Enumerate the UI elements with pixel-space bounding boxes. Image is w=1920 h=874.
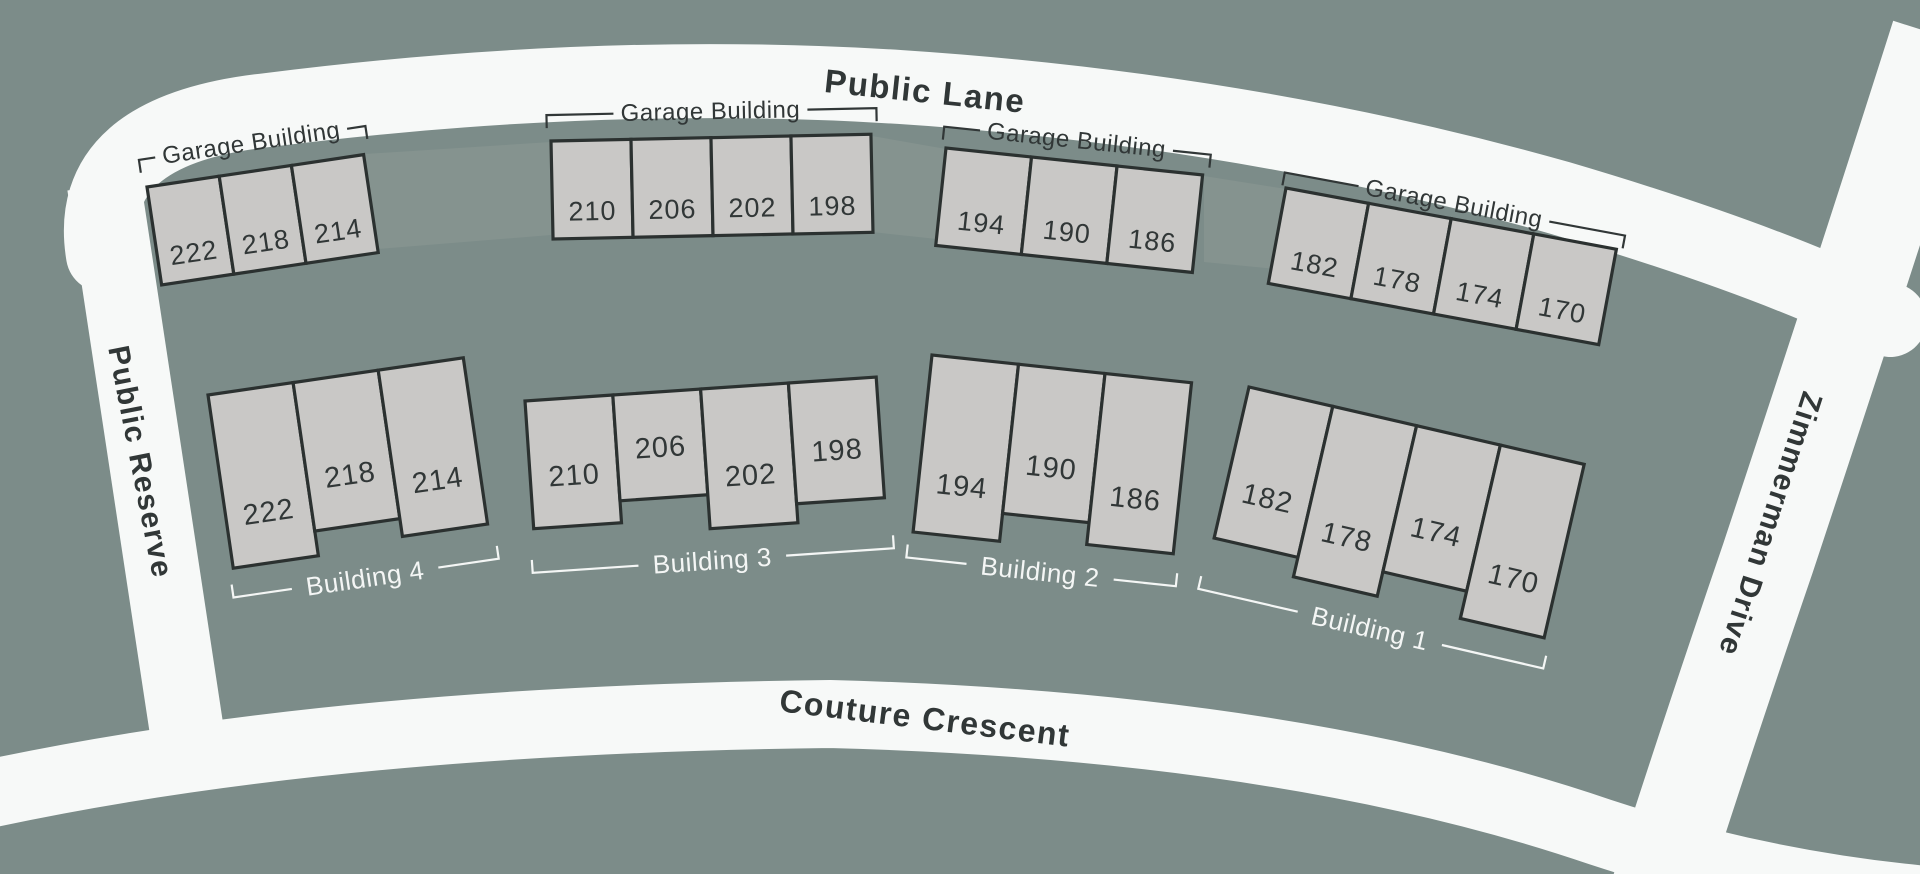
site-plan: Public LanePublic ReserveCouture Crescen…	[0, 0, 1920, 874]
garage-unit-194	[936, 148, 1032, 254]
site-plan-map: Public LanePublic ReserveCouture Crescen…	[0, 0, 1920, 874]
garage-unit-186	[1107, 166, 1203, 272]
garage-unit-170	[1516, 234, 1616, 345]
garage-unit-label-190: 190	[1041, 215, 1092, 250]
unit-label-210: 210	[547, 458, 600, 493]
building-unit-186	[1087, 373, 1192, 553]
garage-unit-label-206: 206	[648, 194, 697, 225]
garage-building-3-label: Garage Building	[620, 96, 800, 127]
unit-label-194: 194	[934, 468, 989, 505]
garage-driveway-gap	[872, 136, 946, 240]
garage-unit-label-198: 198	[808, 191, 857, 222]
unit-label-186: 186	[1108, 481, 1163, 518]
garage-driveway-gap	[365, 142, 551, 250]
garage-unit-label-186: 186	[1127, 224, 1178, 259]
unit-label-190: 190	[1024, 450, 1079, 487]
building-unit-190	[1003, 364, 1105, 522]
garage-unit-214	[291, 155, 378, 264]
garage-unit-190	[1021, 157, 1117, 263]
building-unit-202	[701, 383, 798, 529]
unit-label-202: 202	[724, 458, 777, 493]
garage-unit-label-210: 210	[568, 196, 617, 227]
garage-unit-label-202: 202	[728, 192, 777, 223]
unit-label-206: 206	[634, 430, 687, 465]
unit-label-198: 198	[810, 433, 863, 468]
garage-unit-label-194: 194	[956, 206, 1007, 241]
